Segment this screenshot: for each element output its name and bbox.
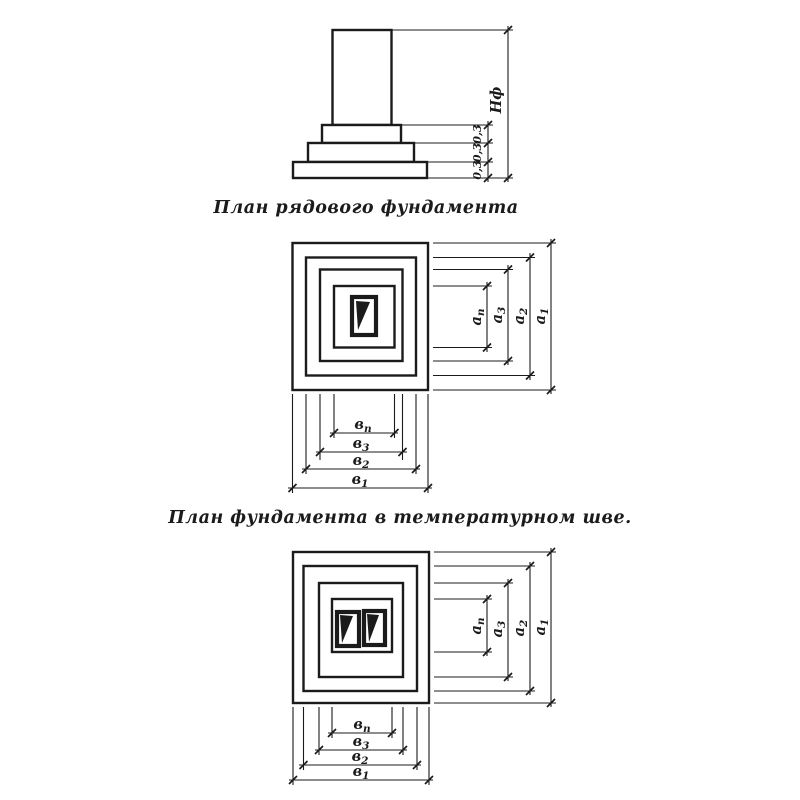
step-dimension-label: 0,3 xyxy=(471,160,484,179)
dim-label-a-3: а3 xyxy=(489,307,508,324)
column-shaft xyxy=(333,30,392,125)
dim-label-a-p: ап xyxy=(468,617,487,634)
dim-label-v-p: вп xyxy=(354,416,371,435)
foundation-step-1 xyxy=(322,125,401,143)
foundation-step-2 xyxy=(308,143,414,162)
step-dimension-label: 0,3 xyxy=(471,124,484,143)
plan-single-view: ап а3 а2 а1 вп в3 в2 в1 xyxy=(288,239,556,493)
plan-double-caption: План фундамента в температурном шве. xyxy=(167,508,631,528)
dim-label-a-2: а2 xyxy=(511,620,530,637)
step-dimension-label: 0,3 xyxy=(471,143,484,162)
dim-label-a-1: а1 xyxy=(532,619,551,636)
plan-double-view: ап а3 а2 а1 вп в3 в2 в1 xyxy=(289,548,556,785)
dim-label-a-3: а3 xyxy=(489,621,508,638)
dim-label-v-2: в2 xyxy=(353,452,370,471)
dim-label-a-1: а1 xyxy=(532,308,551,325)
drawing-sheet: 0,3 0,3 0,3 Нф План рядового фундамента … xyxy=(0,0,800,800)
dim-label-a-2: а2 xyxy=(511,308,530,325)
dim-label-a-p: ап xyxy=(468,308,487,325)
foundation-height-label: Нф xyxy=(488,87,505,115)
foundation-step-3 xyxy=(293,162,427,178)
foundation-drawing: 0,3 0,3 0,3 Нф План рядового фундамента … xyxy=(0,0,800,800)
dim-label-v-1: в1 xyxy=(352,471,369,490)
elevation-view: 0,3 0,3 0,3 Нф xyxy=(293,26,513,182)
plan-single-caption: План рядового фундамента xyxy=(212,198,518,218)
